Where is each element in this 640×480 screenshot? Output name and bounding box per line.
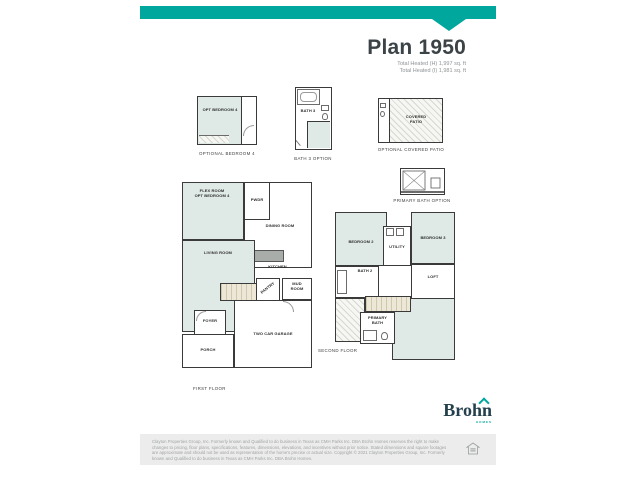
living-room-label: LIVING ROOM [190,251,246,256]
total-heated-line-1: Total Heated (H) 1,997 sq. ft [278,61,466,68]
powder-room-label: PWDR [245,198,269,203]
dryer-icon [396,228,404,236]
bathtub-icon [297,89,320,105]
bathtub-basin [300,92,317,102]
patio-side-room [379,99,390,142]
mud-room-label: MUD ROOM [283,282,311,292]
closet-hatch [199,135,229,143]
equal-housing-icon [466,442,480,456]
second-floor-caption: SECOND FLOOR [318,348,357,353]
primary-bath-fixtures-icon [401,169,444,194]
primary-bath-option-caption: PRIMARY BATH OPTION [387,198,457,203]
page-title: Plan 1950 [278,37,466,59]
shower-area [307,121,330,148]
porch-label: PORCH [182,348,234,353]
primary-bath-option-diagram [400,168,445,195]
sink-icon [321,105,329,111]
optional-bedroom4-caption: OPTIONAL BEDROOM 4 [192,151,262,156]
kitchen-label: KITCHEN [255,265,300,270]
bedroom3-label: BEDROOM 3 [413,236,453,241]
bathtub-icon [363,330,377,341]
accent-bar [140,6,496,19]
bath2-label: BATH 2 [351,269,379,274]
toilet-icon [380,111,385,117]
accent-arrow-icon [432,19,466,31]
toilet-icon [381,332,388,340]
heated-stats: Total Heated (H) 1,997 sq. ft Total Heat… [278,61,466,75]
total-heated-line-2: Total Heated (I) 1,981 sq. ft [278,68,466,75]
first-floor-plan: DINING ROOM KITCHEN FLEX ROOM OPT BEDROO… [182,182,312,368]
door-leaf-icon [295,135,301,146]
stairs-second-floor [365,296,411,312]
bath3-option-caption: BATH 3 OPTION [283,156,343,161]
toilet-icon [322,113,328,120]
opt-bedroom4-label: OPT BEDROOM 4 [200,108,240,113]
bath3-label: BATH 3 [297,109,319,114]
second-floor-plan: BEDROOM 2 BEDROOM 3 UTILITY BATH 2 LOFT … [335,212,455,360]
sink-icon [380,103,386,108]
covered-patio-diagram: COVERED PATIO [378,98,443,143]
loft-label: LOFT [413,275,453,280]
brohn-logo-tagline: HOMES [476,420,492,424]
bathtub-icon [337,270,347,294]
primary-bath-label: PRIMARY BATH [361,316,394,326]
washer-icon [386,228,394,236]
optional-bedroom4-diagram: OPT BEDROOM 4 [197,96,257,145]
kitchen-island [254,250,284,262]
first-floor-caption: FIRST FLOOR [193,386,226,391]
legal-disclaimer: Clayton Properties Group, Inc. Formerly … [152,439,452,461]
covered-patio-caption: OPTIONAL COVERED PATIO [375,147,447,152]
dining-room-label: DINING ROOM [252,224,308,229]
bath3-option-diagram: BATH 3 [295,87,332,150]
covered-patio-label: COVERED PATIO [393,115,439,125]
utility-label: UTILITY [383,245,411,250]
footer-band: Clayton Properties Group, Inc. Formerly … [140,434,496,465]
bedroom2-label: BEDROOM 2 [337,240,385,245]
flex-room-label: FLEX ROOM OPT BEDROOM 4 [186,189,238,199]
plan-header: Plan 1950 Total Heated (H) 1,997 sq. ft … [278,37,466,75]
brohn-logo: Brohn HOMES [426,401,496,427]
garage-label: TWO CAR GARAGE [237,332,309,337]
door-swing-icon [243,125,254,136]
